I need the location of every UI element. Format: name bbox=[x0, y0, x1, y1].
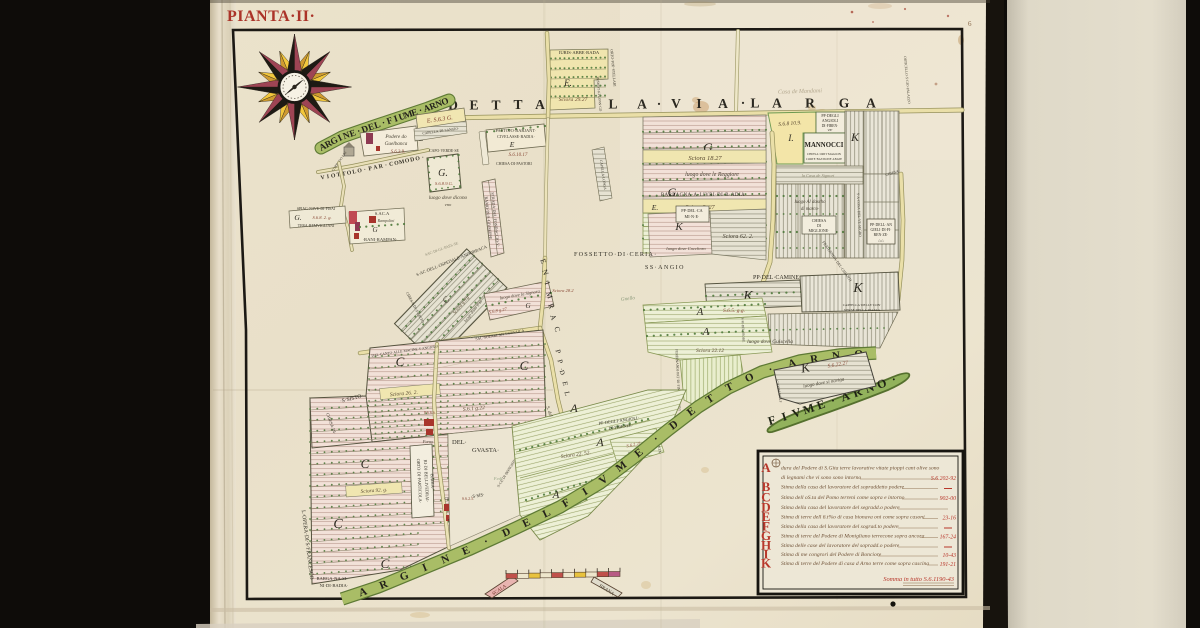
svg-text:Sciora 18.27: Sciora 18.27 bbox=[688, 155, 722, 162]
svg-text:CIVELASSE·BADIA·: CIVELASSE·BADIA· bbox=[497, 134, 535, 139]
svg-text:R: R bbox=[805, 96, 815, 111]
svg-text:CHIESA·ORTI·MAGION: CHIESA·ORTI·MAGION bbox=[807, 152, 842, 156]
svg-text:G: G bbox=[525, 302, 530, 310]
svg-text:luogo dove Cocchoro: luogo dove Cocchoro bbox=[666, 246, 706, 251]
svg-text:CAPO·VERDE·SE: CAPO·VERDE·SE bbox=[429, 149, 459, 153]
svg-text:C: C bbox=[361, 456, 370, 471]
svg-text:PIANTA·II·: PIANTA·II· bbox=[227, 8, 315, 25]
svg-text:Rampolini: Rampolini bbox=[377, 218, 395, 223]
svg-text:BARGA·NA·SI.: BARGA·NA·SI. bbox=[316, 576, 347, 581]
svg-text:Sciora 62. 2.: Sciora 62. 2. bbox=[723, 234, 754, 240]
svg-text:C: C bbox=[381, 556, 390, 571]
svg-text:·: · bbox=[657, 97, 662, 112]
svg-text:G.: G. bbox=[438, 168, 448, 179]
svg-text:I: I bbox=[696, 96, 701, 111]
svg-text:A: A bbox=[569, 401, 578, 415]
svg-text:A: A bbox=[637, 97, 647, 112]
svg-text:·BADIA·: ·BADIA· bbox=[430, 472, 436, 489]
svg-text:A: A bbox=[535, 97, 545, 112]
svg-text:P.6.6.6.: P.6.6.6. bbox=[424, 410, 436, 415]
svg-text:A: A bbox=[718, 96, 728, 111]
svg-text:BARLAGNA·A·LIVRI·DI·B·ADIA: BARLAGNA·A·LIVRI·DI·B·ADIA bbox=[661, 193, 745, 198]
svg-text:Stima di me congrori del Poder: Stima di me congrori del Podere di Bonci… bbox=[781, 552, 882, 558]
svg-text:I.: I. bbox=[787, 133, 793, 143]
svg-text:Stima delle case del lavorator: Stima delle case del lavoratore del sopr… bbox=[781, 543, 900, 549]
svg-text:NI·DI·BADIA·: NI·DI·BADIA· bbox=[320, 583, 349, 588]
svg-text:E.: E. bbox=[563, 78, 572, 88]
svg-text:vno: vno bbox=[445, 202, 452, 207]
svg-text:GIELI·DI·FI·: GIELI·DI·FI· bbox=[870, 228, 891, 232]
svg-text:K: K bbox=[674, 221, 683, 233]
svg-text:G: G bbox=[839, 96, 850, 111]
svg-text:Stima della casa del lavorator: Stima della casa del lavoratore del sopr… bbox=[781, 485, 905, 491]
svg-text:SPIAG·NAVE·DI·PISAI: SPIAG·NAVE·DI·PISAI bbox=[297, 207, 336, 211]
svg-text:luogo Al dascho: luogo Al dascho bbox=[794, 200, 826, 205]
svg-text:⌂⌂: ⌂⌂ bbox=[878, 238, 884, 243]
svg-text:TERA·BEMVIGLIANI: TERA·BEMVIGLIANI bbox=[298, 224, 335, 228]
svg-text:A: A bbox=[772, 96, 782, 111]
svg-text:S.AC.A: S.AC.A bbox=[375, 211, 390, 216]
svg-text:S.6.202-92: S.6.202-92 bbox=[931, 476, 956, 482]
svg-text:A: A bbox=[702, 326, 710, 338]
svg-text:PASTOJO·BARJANT·: PASTOJO·BARJANT· bbox=[496, 128, 537, 133]
svg-text:G.: G. bbox=[294, 213, 301, 222]
svg-text:G: G bbox=[372, 226, 377, 234]
svg-text:di legnami che vi sono sono in: di legnami che vi sono sono intorno bbox=[781, 475, 861, 481]
svg-text:CHIESA·DI·PASTORI: CHIESA·DI·PASTORI bbox=[496, 162, 532, 166]
svg-text:C: C bbox=[396, 354, 405, 369]
svg-text:A: A bbox=[696, 306, 704, 318]
svg-text:MI·N·E·: MI·N·E· bbox=[685, 214, 700, 219]
svg-text:PP·DEL·CA: PP·DEL·CA bbox=[681, 208, 702, 213]
svg-text:L: L bbox=[750, 96, 759, 111]
svg-text:S.6.5. g.g.: S.6.5. g.g. bbox=[723, 308, 745, 314]
svg-text:MIGLIONE·: MIGLIONE· bbox=[808, 228, 829, 233]
svg-text:luogo dove le Reggiore: luogo dove le Reggiore bbox=[685, 172, 739, 178]
svg-text:Sciora 29.27: Sciora 29.27 bbox=[559, 97, 588, 103]
svg-text:Stima di terre dell 6.t%o di c: Stima di terre dell 6.t%o di casa bionav… bbox=[781, 515, 925, 521]
svg-text:CHIESA: CHIESA bbox=[812, 218, 827, 223]
svg-text:902-00: 902-00 bbox=[940, 496, 957, 502]
svg-text:VERSE·DELLA·PIAZZA: VERSE·DELLA·PIAZZA bbox=[844, 308, 881, 312]
svg-text:6: 6 bbox=[968, 20, 972, 28]
svg-text:23-16: 23-16 bbox=[942, 516, 956, 522]
svg-text:Stima della casa del lavorator: Stima della casa del lavoratore del segr… bbox=[781, 505, 900, 511]
svg-text:E.: E. bbox=[651, 203, 659, 212]
svg-text:luogo dove dicono: luogo dove dicono bbox=[429, 195, 468, 201]
svg-text:Somma in tutto S.6.1190-43: Somma in tutto S.6.1190-43 bbox=[883, 576, 954, 583]
svg-text:luogo dove Guiscella: luogo dove Guiscella bbox=[747, 339, 793, 345]
svg-text:IURIS·ABBE·RADA: IURIS·ABBE·RADA bbox=[559, 50, 600, 55]
svg-text:dura del Podere di S.Gita terr: dura del Podere di S.Gita terre lavorati… bbox=[781, 466, 940, 472]
svg-text:S.6.8.9.G.: S.6.8.9.G. bbox=[435, 181, 453, 186]
svg-text:A: A bbox=[866, 96, 876, 111]
svg-text:PP·DELL·AN: PP·DELL·AN bbox=[870, 223, 892, 227]
svg-text:A: A bbox=[761, 460, 771, 475]
svg-text:PP·DEGLI: PP·DEGLI bbox=[821, 114, 839, 118]
svg-text:·ZE·: ·ZE· bbox=[827, 128, 833, 132]
svg-text:DEL·: DEL· bbox=[452, 439, 467, 446]
svg-text:SS·ANGIO: SS·ANGIO bbox=[645, 265, 685, 271]
svg-text:K: K bbox=[850, 130, 860, 144]
svg-text:·: · bbox=[741, 96, 746, 111]
svg-text:la Casa de Signori: la Casa de Signori bbox=[802, 173, 836, 178]
svg-text:GVASTA·: GVASTA· bbox=[472, 447, 499, 454]
svg-text:Forno: Forno bbox=[422, 439, 433, 444]
svg-text:C: C bbox=[333, 517, 343, 532]
svg-text:K: K bbox=[852, 281, 863, 296]
svg-text:T: T bbox=[513, 97, 522, 112]
svg-text:·RANI·RAMPAN·: ·RANI·RAMPAN· bbox=[362, 237, 398, 242]
svg-text:CAPPELLA·DELLE·CON·: CAPPELLA·DELLE·CON· bbox=[843, 303, 881, 307]
svg-text:CORTE·BASTIONE·ABATE: CORTE·BASTIONE·ABATE bbox=[806, 157, 842, 161]
svg-text:Podere do: Podere do bbox=[384, 134, 407, 140]
svg-text:Stima della casa del lavorator: Stima della casa del lavoratore del sogr… bbox=[781, 524, 899, 530]
svg-text:Stima di terre del Podere di M: Stima di terre del Podere di Monigliano … bbox=[781, 534, 925, 540]
svg-text:Sciora 28.2: Sciora 28.2 bbox=[552, 288, 574, 293]
svg-text:V: V bbox=[671, 96, 681, 111]
svg-text:FOSSETTO·DI·CERIA·: FOSSETTO·DI·CERIA· bbox=[574, 251, 657, 258]
svg-text:S.6.10.17: S.6.10.17 bbox=[509, 153, 528, 158]
svg-text:MANNOCCI: MANNOCCI bbox=[805, 142, 844, 149]
svg-text:ANGIOLI: ANGIOLI bbox=[822, 119, 839, 123]
svg-text:167-24: 167-24 bbox=[940, 534, 957, 541]
svg-text:Guelbanca: Guelbanca bbox=[385, 141, 408, 147]
svg-text:10-43: 10-43 bbox=[942, 552, 956, 559]
svg-text:Sciora 22.12: Sciora 22.12 bbox=[696, 348, 724, 354]
svg-text:191-21: 191-21 bbox=[940, 562, 957, 568]
svg-text:E: E bbox=[469, 98, 478, 113]
svg-text:di marco·: di marco· bbox=[801, 207, 819, 212]
svg-text:REN·ZE·: REN·ZE· bbox=[874, 233, 889, 237]
svg-text:Stima dell oS.ta del Pomo terr: Stima dell oS.ta del Pomo terreni come s… bbox=[781, 495, 905, 501]
svg-text:A: A bbox=[552, 489, 560, 501]
svg-text:Stima di terre del Podere di c: Stima di terre del Podere di casa d Arno… bbox=[781, 561, 929, 567]
svg-text:A: A bbox=[595, 435, 604, 449]
svg-text:K: K bbox=[761, 556, 772, 571]
svg-text:C: C bbox=[520, 358, 529, 373]
svg-text:L: L bbox=[608, 97, 617, 112]
svg-text:S.6.8. 2. g.: S.6.8. 2. g. bbox=[312, 215, 331, 220]
svg-text:T: T bbox=[491, 98, 500, 113]
svg-text:E: E bbox=[509, 140, 515, 149]
svg-text:S.6.3.9.: S.6.3.9. bbox=[391, 150, 405, 155]
